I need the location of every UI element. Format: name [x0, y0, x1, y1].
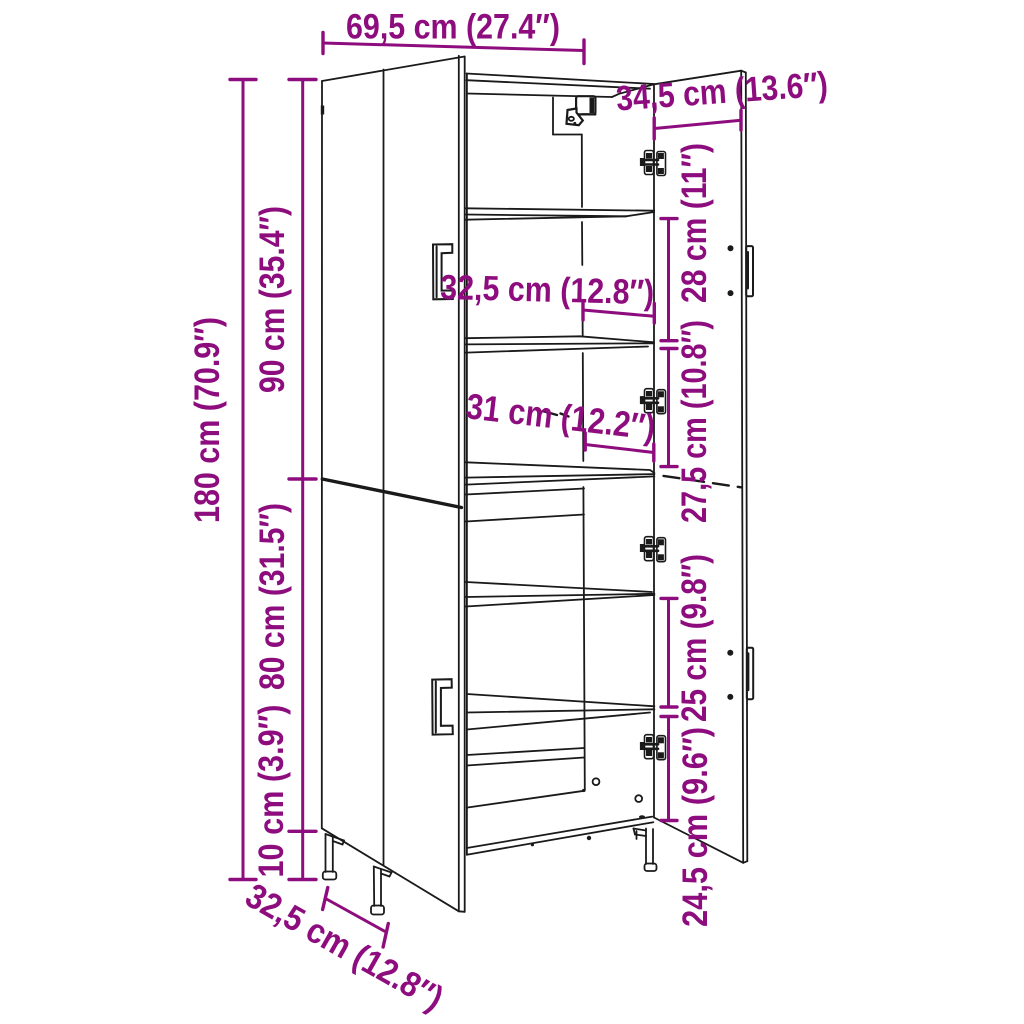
svg-text:80 cm (31.5″): 80 cm (31.5″) — [253, 503, 292, 690]
svg-text:180 cm (70.9″): 180 cm (70.9″) — [188, 317, 227, 523]
svg-text:28 cm (11″): 28 cm (11″) — [675, 143, 714, 303]
svg-text:32,5 cm (12.8″): 32,5 cm (12.8″) — [440, 268, 655, 312]
svg-text:10 cm (3.9″): 10 cm (3.9″) — [252, 705, 291, 878]
svg-text:25 cm (9.8″): 25 cm (9.8″) — [675, 554, 714, 722]
svg-text:90 cm (35.4″): 90 cm (35.4″) — [253, 206, 292, 393]
svg-text:69,5 cm (27.4″): 69,5 cm (27.4″) — [346, 8, 560, 47]
svg-text:27,5 cm (10.8″): 27,5 cm (10.8″) — [675, 320, 714, 523]
svg-text:24,5 cm (9.6″): 24,5 cm (9.6″) — [676, 727, 715, 927]
